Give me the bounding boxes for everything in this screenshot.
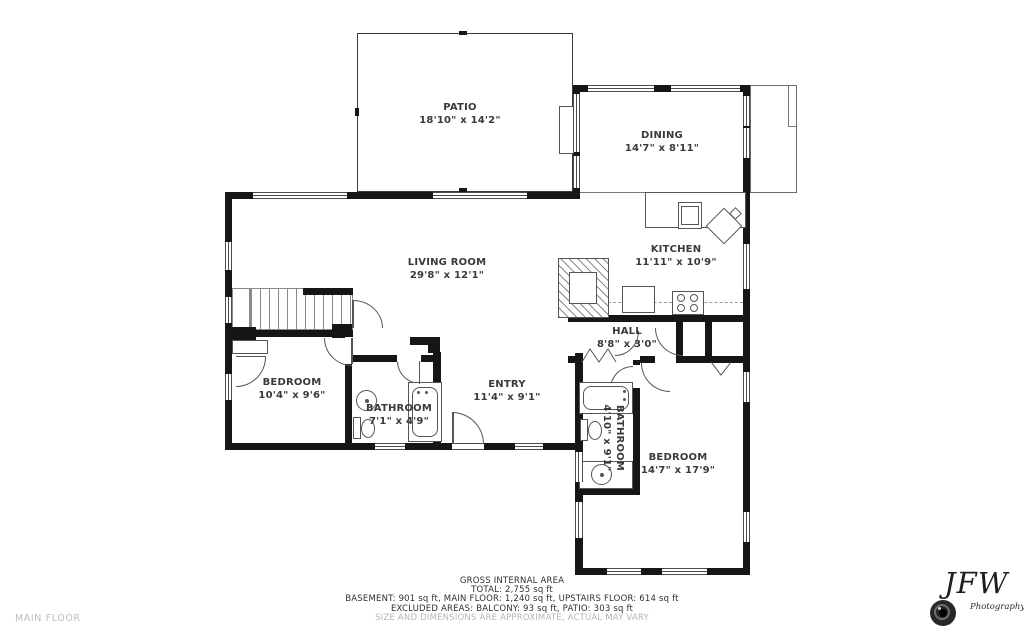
wall-tick	[355, 108, 359, 116]
wall	[428, 345, 440, 353]
room-name: HALL	[577, 325, 677, 338]
window	[433, 192, 527, 199]
window	[573, 156, 580, 188]
wall	[568, 356, 582, 363]
fridge	[622, 286, 655, 313]
wall	[575, 488, 640, 495]
wall	[303, 288, 353, 295]
room-label-bedroom-left: BEDROOM 10'4" x 9'6"	[222, 376, 362, 402]
window	[607, 568, 641, 575]
window	[743, 372, 750, 402]
entry-door-threshold	[452, 443, 484, 450]
room-name: DINING	[592, 129, 732, 142]
room-name: LIVING ROOM	[377, 256, 517, 269]
window	[225, 297, 232, 323]
room-name: BEDROOM	[222, 376, 362, 389]
bathtub-faucet	[417, 391, 420, 394]
chimney-flue	[569, 272, 597, 304]
room-dims: 8'8" x 3'0"	[577, 338, 677, 351]
stove-icon	[672, 291, 704, 315]
lens-core	[939, 609, 947, 617]
wall	[410, 337, 440, 345]
window	[662, 568, 707, 575]
room-label-bathroom-left: BATHROOM 7'1" x 4'9"	[344, 402, 454, 428]
room-label-bedroom-right: BEDROOM 14'7" x 17'9"	[608, 451, 748, 477]
window	[515, 443, 543, 450]
door-leaf	[236, 356, 266, 357]
logo-initials: JFW	[944, 566, 1009, 600]
floor-label: MAIN FLOOR	[15, 613, 81, 624]
balcony-step-line	[788, 86, 789, 127]
window	[225, 242, 232, 270]
door-swing-arc	[353, 300, 383, 328]
kitchen-sink-basin	[681, 206, 699, 225]
room-name: ENTRY	[437, 378, 577, 391]
logo-subtitle: Photography	[970, 602, 1024, 612]
window	[671, 85, 740, 92]
room-dims: 29'8" x 12'1"	[377, 269, 517, 282]
door-leaf	[419, 361, 420, 384]
bathtub-faucet	[425, 391, 428, 394]
stair-landing	[232, 288, 250, 330]
closet	[232, 340, 268, 354]
wall	[345, 355, 441, 362]
room-label-kitchen: KITCHEN 11'11" x 10'9"	[606, 243, 746, 269]
wall	[705, 322, 712, 363]
room-label-entry: ENTRY 11'4" x 9'1"	[437, 378, 577, 404]
window	[743, 128, 750, 158]
window	[743, 512, 750, 542]
door-leaf	[351, 338, 353, 364]
room-dims: 14'7" x 8'11"	[592, 142, 732, 155]
wall	[232, 327, 256, 340]
room-dims: 10'4" x 9'6"	[222, 389, 362, 402]
window	[575, 452, 583, 482]
floorplan-canvas: PATIO 18'10" x 14'2" DINING 14'7" x 8'11…	[0, 0, 1024, 639]
open-plan-boundary-line	[580, 192, 646, 193]
area-summary: GROSS INTERNAL AREA TOTAL: 2,755 sq ft B…	[0, 577, 1024, 623]
balcony-step-line	[788, 126, 796, 127]
room-label-dining: DINING 14'7" x 8'11"	[592, 129, 732, 155]
balcony-outline	[750, 85, 797, 193]
disclaimer: SIZE AND DIMENSIONS ARE APPROXIMATE, ACT…	[0, 614, 1024, 623]
room-label-living: LIVING ROOM 29'8" x 12'1"	[377, 256, 517, 282]
photographer-logo: JFW Photography	[928, 570, 1024, 634]
window	[253, 192, 347, 199]
wall-tick	[459, 31, 467, 35]
room-name: KITCHEN	[606, 243, 746, 256]
camera-lens-icon	[930, 600, 956, 626]
door-swing-arc	[641, 363, 670, 392]
window	[588, 85, 654, 92]
room-dims: 14'7" x 17'9"	[608, 464, 748, 477]
toilet	[580, 419, 588, 441]
room-dims: 11'4" x 9'1"	[437, 391, 577, 404]
door-opening	[633, 365, 640, 388]
door-swing-arc	[452, 412, 484, 444]
window	[575, 502, 583, 538]
door-leaf	[352, 300, 354, 328]
room-name: BEDROOM	[608, 451, 748, 464]
closet-rod-icon	[709, 361, 733, 377]
door-opening	[397, 355, 421, 362]
room-dims: 11'11" x 10'9"	[606, 256, 746, 269]
fireplace	[559, 106, 574, 154]
room-label-hall: HALL 8'8" x 3'0"	[577, 325, 677, 351]
window	[375, 443, 405, 450]
room-dims: 7'1" x 4'9"	[344, 415, 454, 428]
window	[573, 94, 580, 152]
room-name: PATIO	[390, 101, 530, 114]
lens-highlight	[938, 607, 941, 610]
room-dims: 18'10" x 14'2"	[390, 114, 530, 127]
wall	[640, 356, 655, 363]
door-swing-arc	[397, 361, 420, 384]
room-label-patio: PATIO 18'10" x 14'2"	[390, 101, 530, 127]
window	[743, 96, 750, 126]
